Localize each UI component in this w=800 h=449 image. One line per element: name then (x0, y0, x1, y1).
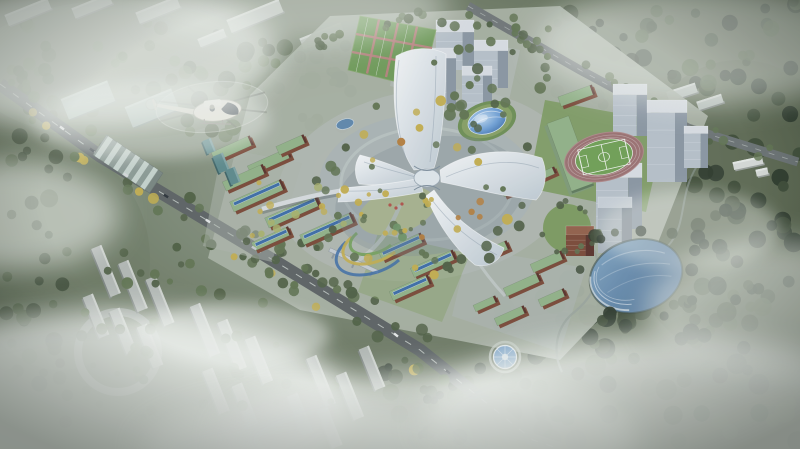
scene-root (0, 0, 800, 449)
rendering-canvas (0, 0, 800, 449)
aerial-campus-rendering (0, 0, 800, 449)
vignette-overlay (0, 0, 800, 449)
